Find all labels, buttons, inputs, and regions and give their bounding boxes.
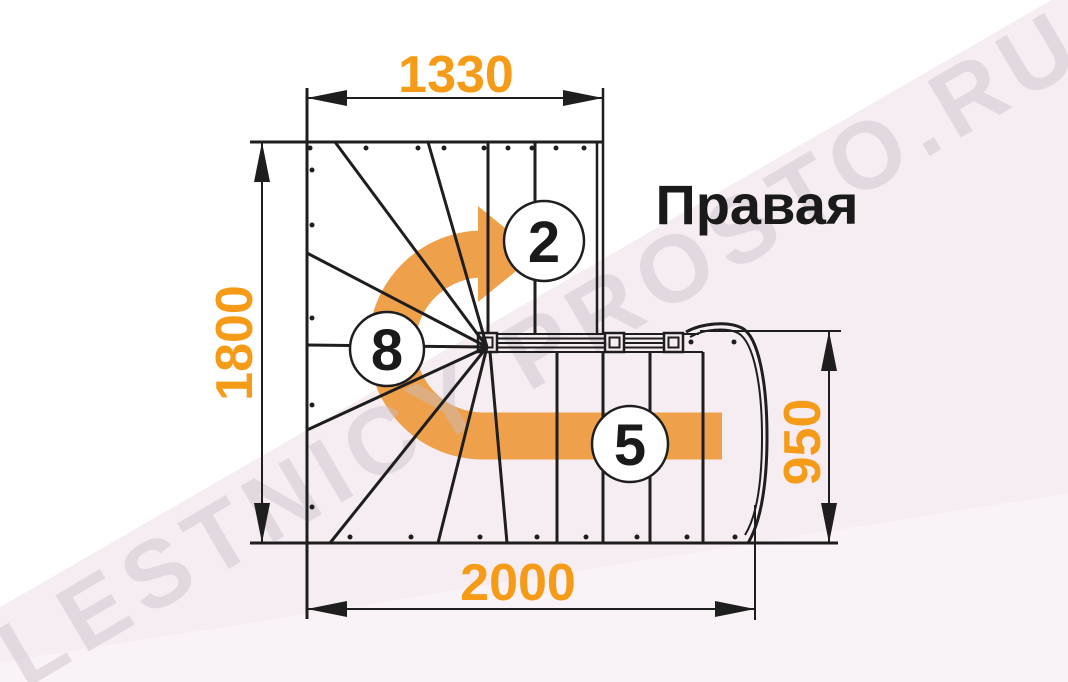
dot	[506, 146, 511, 151]
dot	[582, 146, 587, 151]
dot	[635, 535, 640, 540]
dim-label-left: 1800	[206, 285, 264, 401]
dot	[482, 146, 487, 151]
upper-flight-count: 2	[528, 210, 560, 275]
dot	[409, 535, 414, 540]
stair-plan-diagram: LESTNICY PROSTO.RU	[0, 0, 1068, 682]
dot	[416, 146, 421, 151]
diagram-canvas: LESTNICY PROSTO.RU	[0, 0, 1068, 682]
dot	[685, 535, 690, 540]
dot	[364, 146, 369, 151]
dot	[310, 316, 315, 321]
arrowhead-top-right	[563, 90, 603, 106]
dot	[535, 535, 540, 540]
dot	[310, 223, 315, 228]
dot	[348, 535, 353, 540]
dot	[478, 535, 483, 540]
dot	[308, 146, 313, 151]
dot	[689, 340, 694, 345]
page-title: Правая	[655, 173, 858, 236]
lower-flight-count: 5	[614, 413, 646, 478]
dot	[554, 146, 559, 151]
winder-count: 8	[371, 318, 403, 383]
arrowhead-left-up	[254, 142, 270, 182]
dim-label-top: 1330	[398, 46, 514, 104]
dim-label-right: 950	[774, 399, 832, 486]
dot	[310, 505, 315, 510]
dot	[732, 340, 737, 345]
dot	[584, 535, 589, 540]
dot	[310, 168, 315, 173]
arrowhead-top-left	[307, 90, 347, 106]
dot	[530, 146, 535, 151]
dot	[442, 146, 447, 151]
dim-label-bottom: 2000	[460, 554, 576, 612]
dot	[733, 535, 738, 540]
dot	[310, 403, 315, 408]
